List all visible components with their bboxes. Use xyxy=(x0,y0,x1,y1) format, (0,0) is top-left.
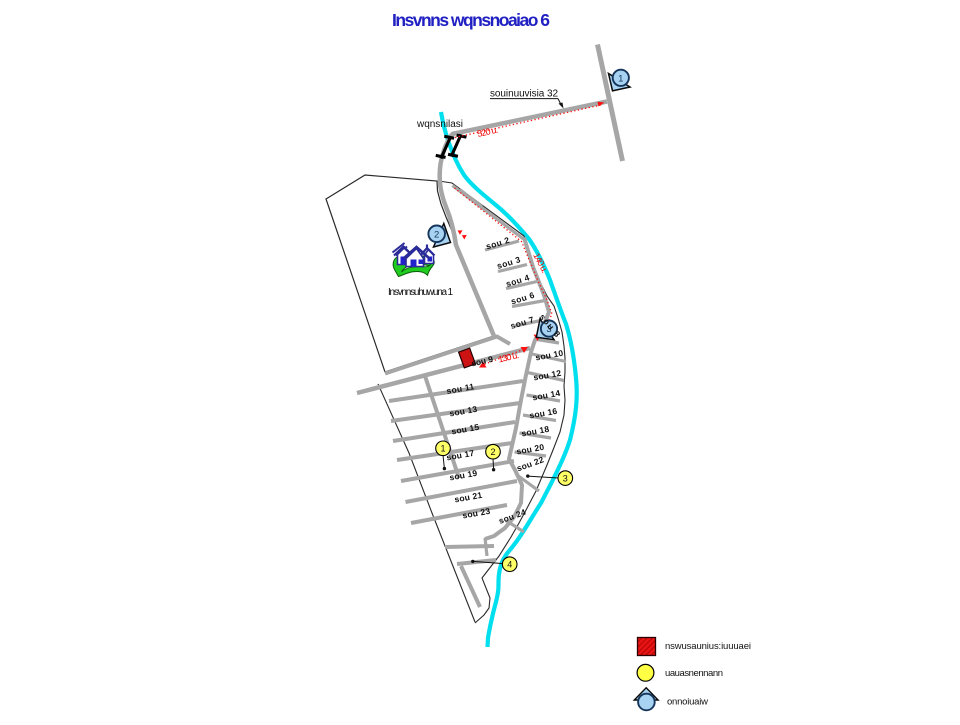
svg-text:1: 1 xyxy=(618,73,623,84)
svg-text:Insvnnsuhuwuna 1: Insvnnsuhuwuna 1 xyxy=(388,287,453,298)
svg-text:Insvnns wqnsnoaiao 6: Insvnns wqnsnoaiao 6 xyxy=(392,10,550,30)
svg-text:onnoiuaiw: onnoiuaiw xyxy=(667,697,708,708)
svg-text:3: 3 xyxy=(563,473,568,483)
svg-text:uauasnennann: uauasnennann xyxy=(665,668,723,679)
svg-text:nswusaunius:iuuuaei: nswusaunius:iuuuaei xyxy=(665,641,751,652)
svg-text:wqnsnilasi: wqnsnilasi xyxy=(416,119,463,130)
svg-text:2: 2 xyxy=(490,447,495,457)
svg-text:2: 2 xyxy=(434,229,439,240)
svg-text:souinuuvisia 32: souinuuvisia 32 xyxy=(490,89,558,100)
svg-text:4: 4 xyxy=(507,560,512,570)
